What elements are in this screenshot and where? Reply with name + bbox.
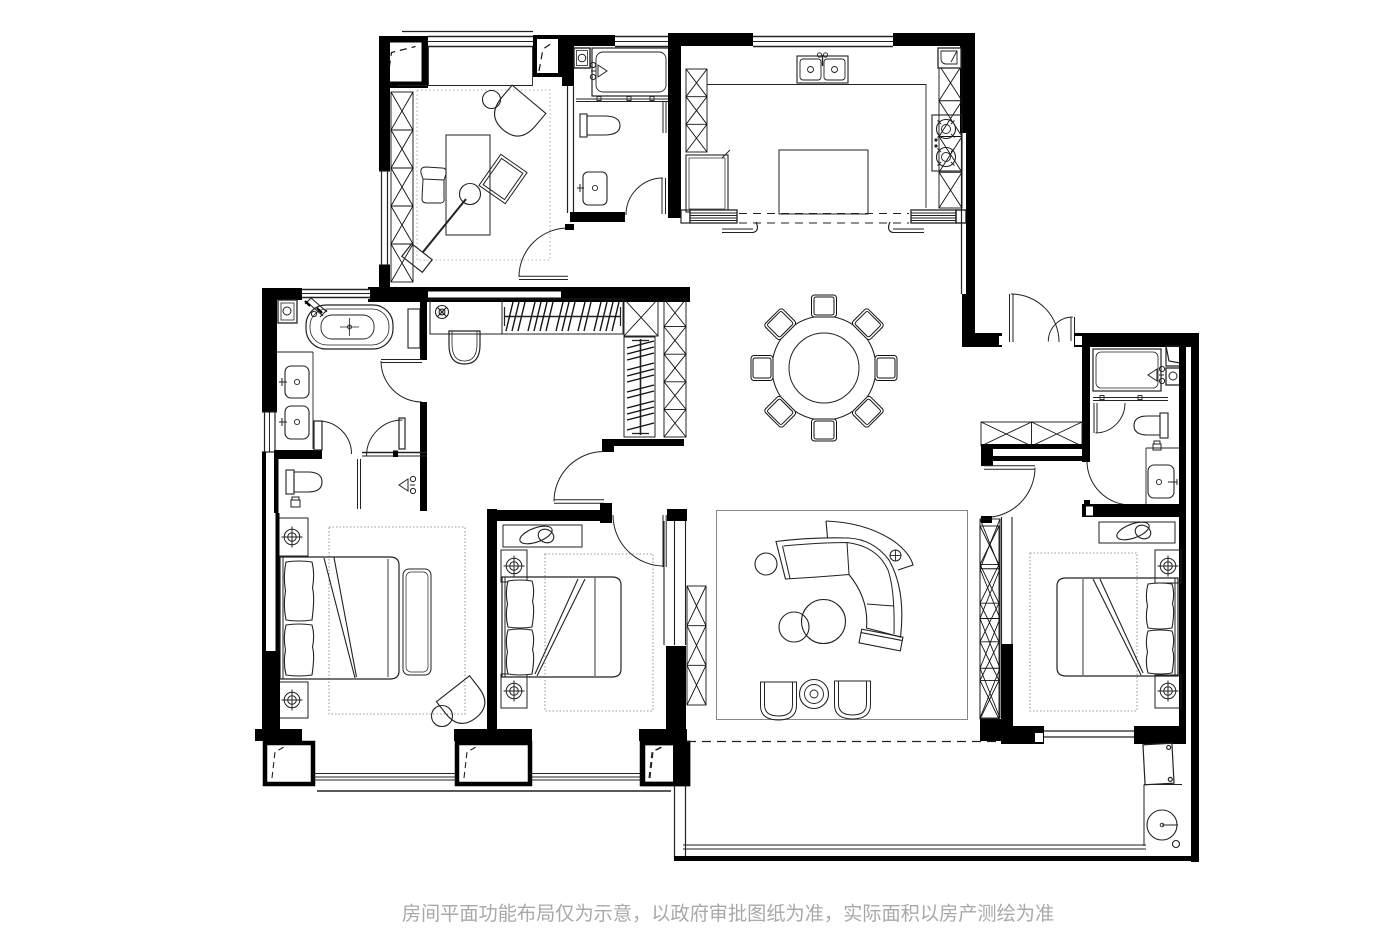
svg-text:房间平面功能布局仅为示意，以政府审批图纸为准，实际面积以房产: 房间平面功能布局仅为示意，以政府审批图纸为准，实际面积以房产测绘为准: [402, 903, 1054, 925]
